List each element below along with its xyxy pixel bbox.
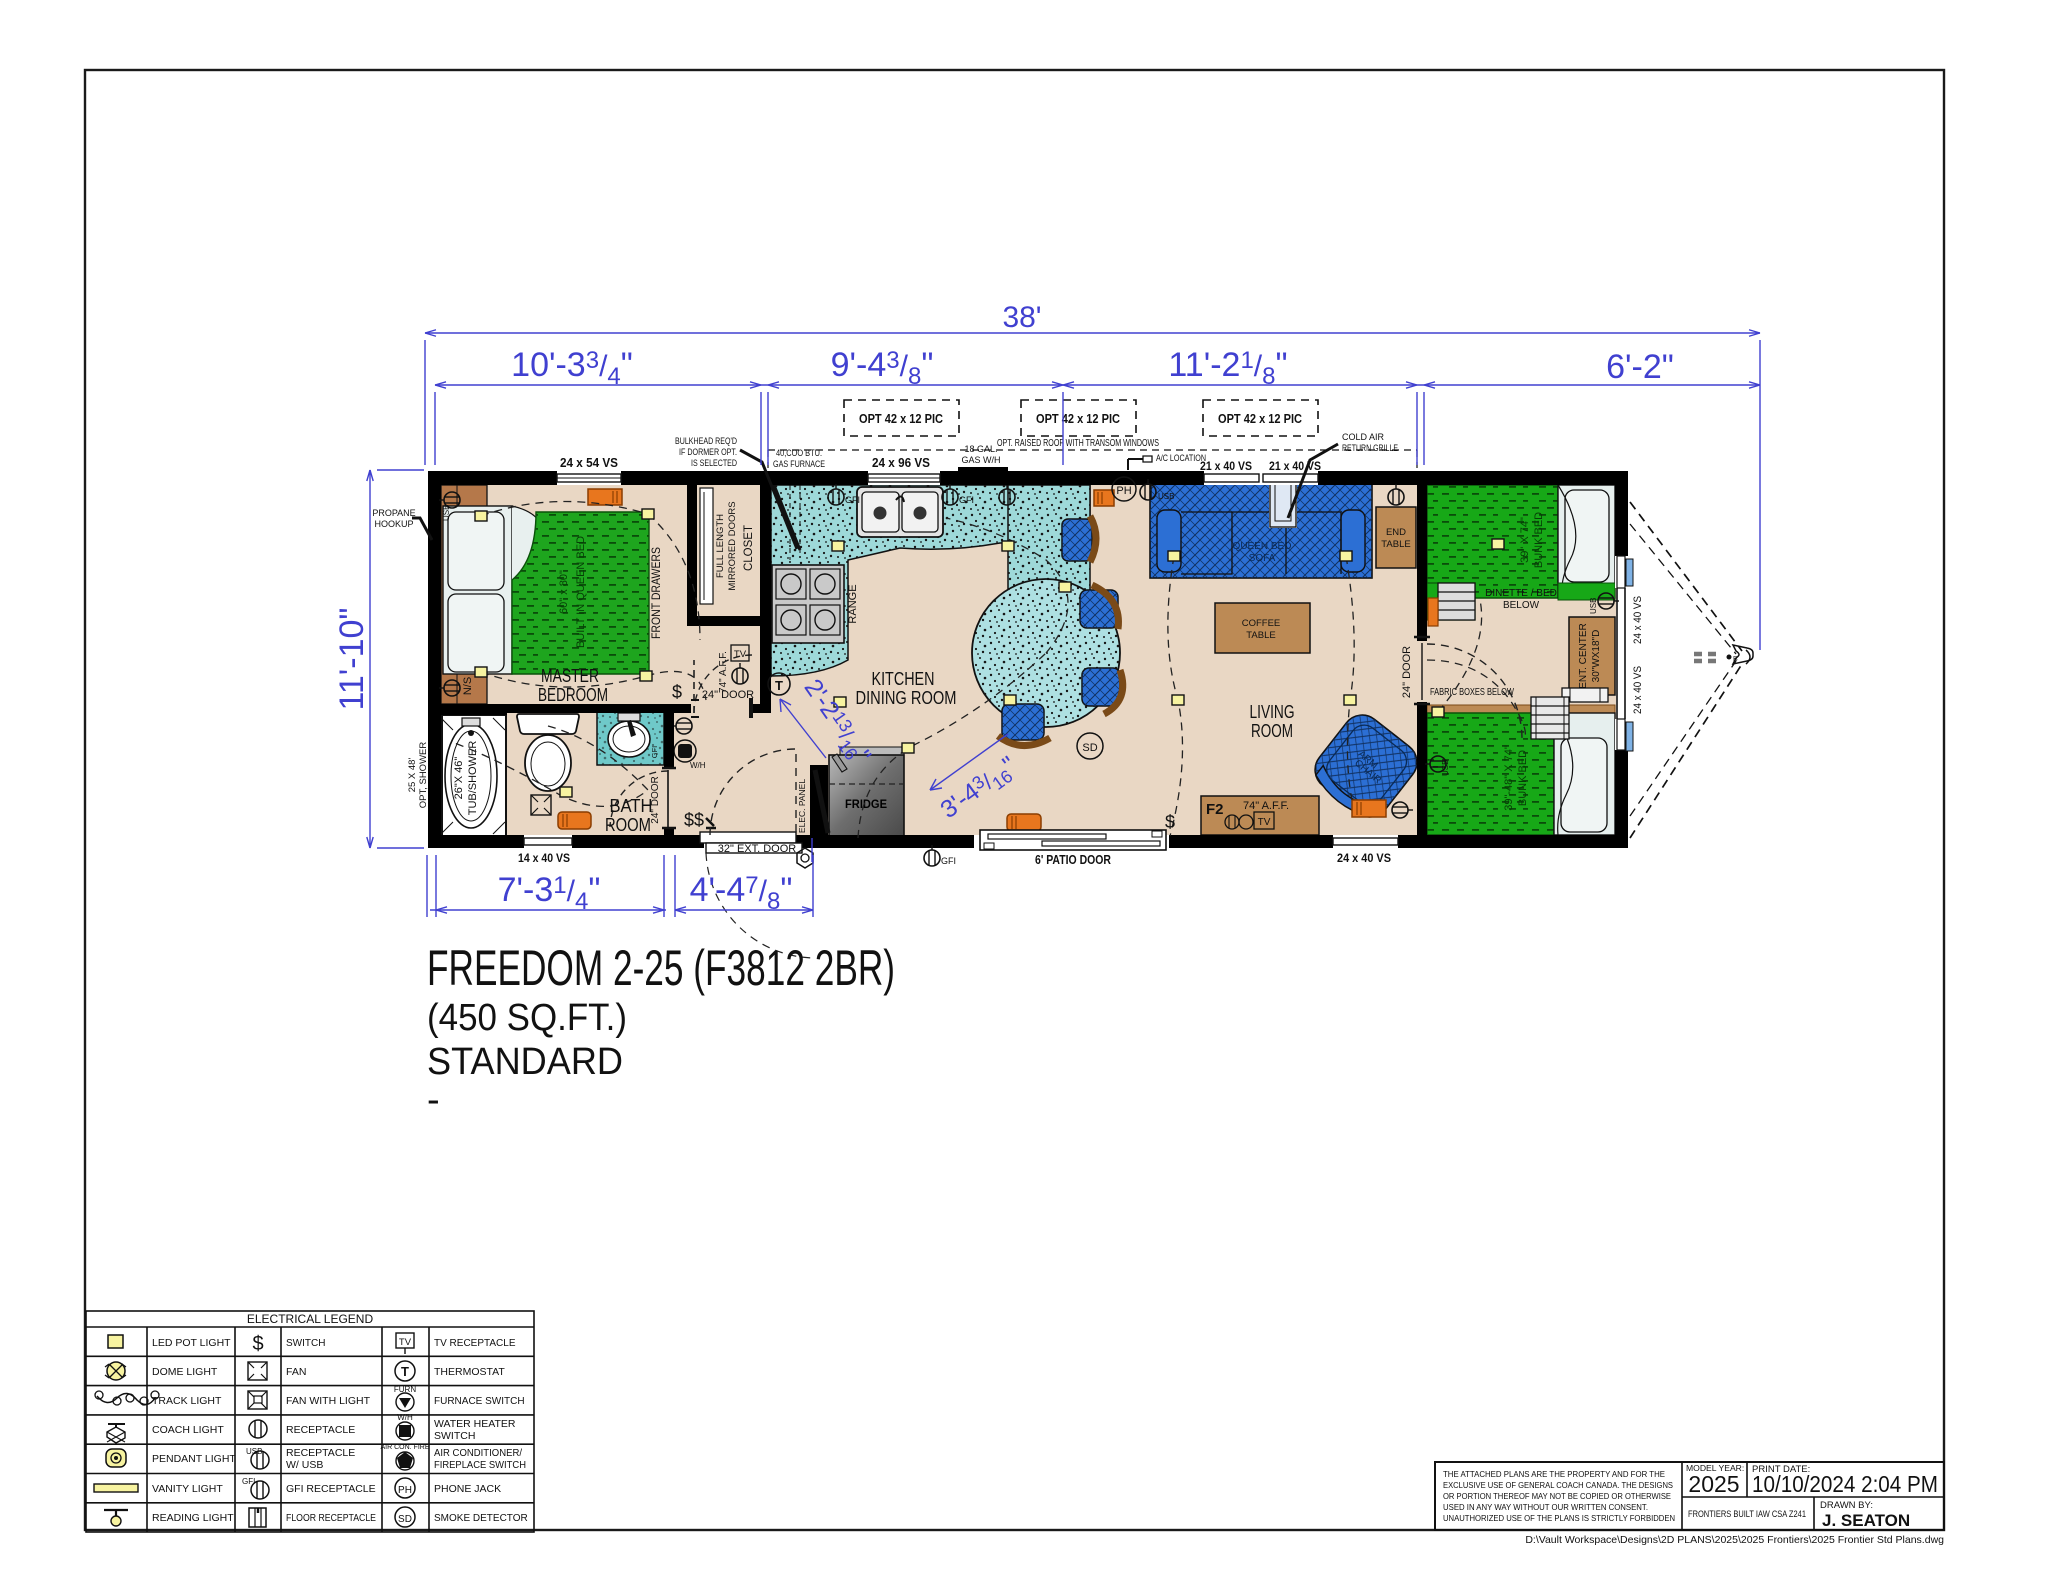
svg-text:21 x 40 VS: 21 x 40 VS — [1200, 459, 1252, 473]
svg-text:FIREPLACE SWITCH: FIREPLACE SWITCH — [434, 1460, 526, 1471]
svg-text:SMOKE DETECTOR: SMOKE DETECTOR — [434, 1513, 528, 1524]
svg-text:LIVING: LIVING — [1250, 702, 1295, 722]
svg-text:DINING ROOM: DINING ROOM — [856, 688, 957, 708]
svg-text:18 GAL.: 18 GAL. — [964, 444, 997, 454]
svg-text:BELOW: BELOW — [1503, 600, 1540, 611]
svg-text:OPT 42 x 12 PIC: OPT 42 x 12 PIC — [859, 411, 944, 426]
svg-text:GAS W/H: GAS W/H — [961, 455, 1000, 465]
svg-text:GFI RECEPTACLE: GFI RECEPTACLE — [286, 1483, 376, 1495]
svg-text:TV: TV — [1258, 817, 1271, 828]
svg-text:OPT, SHOWER: OPT, SHOWER — [418, 742, 429, 809]
svg-text:10/10/2024 2:04 PM: 10/10/2024 2:04 PM — [1752, 1471, 1938, 1497]
svg-text:KITCHEN: KITCHEN — [872, 669, 935, 689]
svg-text:FRONTIERS BUILT IAW CSA Z241: FRONTIERS BUILT IAW CSA Z241 — [1688, 1509, 1806, 1520]
svg-text:74" A.F.F.: 74" A.F.F. — [1243, 800, 1289, 812]
svg-text:$$: $$ — [684, 810, 704, 830]
svg-text:SD: SD — [398, 1514, 412, 1525]
svg-text:FULL LENGTH: FULL LENGTH — [715, 514, 726, 578]
svg-text:GFI: GFI — [845, 495, 860, 505]
svg-text:DRAWN BY:: DRAWN BY: — [1820, 1500, 1873, 1511]
svg-text:COLD AIR: COLD AIR — [1342, 432, 1385, 442]
svg-text:AIR CON. FIRE: AIR CON. FIRE — [380, 1444, 429, 1451]
svg-text:MASTER: MASTER — [541, 666, 599, 686]
svg-text:60" x 80": 60" x 80" — [558, 570, 570, 614]
svg-text:30"WX18"D: 30"WX18"D — [1591, 630, 1602, 683]
svg-text:W/H: W/H — [690, 761, 706, 770]
svg-text:SOFA: SOFA — [1249, 553, 1276, 564]
svg-text:IF DORMER OPT.: IF DORMER OPT. — [679, 447, 737, 457]
svg-text:W/ USB: W/ USB — [286, 1459, 323, 1471]
svg-text:14 x 40 VS: 14 x 40 VS — [518, 851, 570, 865]
svg-text:RANGE: RANGE — [847, 584, 859, 623]
svg-text:DINETTE / BED: DINETTE / BED — [1485, 588, 1557, 599]
svg-text:6'-2": 6'-2" — [1606, 348, 1674, 386]
svg-text:TRACK LIGHT: TRACK LIGHT — [152, 1395, 222, 1407]
svg-text:FURNACE SWITCH: FURNACE SWITCH — [434, 1396, 525, 1407]
svg-text:BUNK BED: BUNK BED — [1533, 512, 1545, 568]
svg-text:FAN WITH LIGHT: FAN WITH LIGHT — [286, 1395, 371, 1407]
svg-text:ELEC. PANEL: ELEC. PANEL — [797, 779, 807, 833]
svg-text:(450 SQ.FT.): (450 SQ.FT.) — [427, 997, 627, 1039]
svg-text:TABLE: TABLE — [1246, 630, 1275, 641]
svg-text:74" A.F.F.: 74" A.F.F. — [718, 651, 729, 693]
svg-text:$: $ — [1165, 812, 1175, 832]
svg-text:ROOM: ROOM — [1251, 721, 1293, 741]
svg-text:RECEPTACLE: RECEPTACLE — [286, 1447, 355, 1459]
svg-text:39" X 74": 39" X 74" — [1519, 517, 1531, 563]
svg-text:END: END — [1386, 527, 1406, 538]
svg-text:RETURN GRILLE: RETURN GRILLE — [1342, 443, 1398, 453]
svg-text:38': 38' — [1002, 301, 1041, 334]
svg-text:D:\Vault Workspace\Designs\2D: D:\Vault Workspace\Designs\2D PLANS\2025… — [1525, 1534, 1944, 1546]
svg-text:TUB/SHOWER: TUB/SHOWER — [467, 741, 479, 816]
svg-text:PHONE JACK: PHONE JACK — [434, 1483, 501, 1495]
svg-text:ROOM: ROOM — [605, 815, 651, 835]
svg-text:HOOKUP: HOOKUP — [374, 519, 413, 529]
svg-text:GAS FURNACE: GAS FURNACE — [773, 459, 825, 469]
svg-text:AIR CONDITIONER/: AIR CONDITIONER/ — [434, 1448, 522, 1459]
svg-text:FABRIC BOXES BELOW: FABRIC BOXES BELOW — [1430, 687, 1514, 698]
svg-text:USB: USB — [1589, 598, 1598, 614]
svg-text:COFFEE: COFFEE — [1242, 618, 1281, 629]
svg-text:40,COO BTU.: 40,COO BTU. — [776, 448, 822, 458]
svg-text:BEDROOM: BEDROOM — [538, 685, 608, 705]
svg-text:LED POT LIGHT: LED POT LIGHT — [152, 1337, 231, 1349]
svg-text:TABLE: TABLE — [1381, 539, 1410, 550]
svg-text:BATH: BATH — [610, 796, 653, 816]
svg-text:W/H: W/H — [397, 1413, 413, 1422]
svg-text:A/C LOCATION: A/C LOCATION — [1156, 453, 1206, 463]
svg-text:25 X 48': 25 X 48' — [407, 758, 418, 793]
svg-text:B: B — [1733, 656, 1738, 663]
svg-text:ENT. CENTER: ENT. CENTER — [1578, 623, 1589, 689]
svg-text:39"-48" X 74": 39"-48" X 74" — [1503, 745, 1515, 811]
svg-text:IS SELECTED: IS SELECTED — [691, 458, 737, 468]
svg-text:N/S: N/S — [462, 677, 474, 695]
svg-text:GFI: GFI — [959, 495, 974, 505]
svg-text:OR PORTION THEREOF MAY NOT BE: OR PORTION THEREOF MAY NOT BE COPIED OR … — [1443, 1491, 1671, 1501]
svg-text:26"X 46": 26"X 46" — [453, 757, 465, 800]
svg-text:FRIDGE: FRIDGE — [845, 797, 887, 811]
svg-text:EXCLUSIVE USE OF GENERAL COACH: EXCLUSIVE USE OF GENERAL COACH CANADA. T… — [1443, 1480, 1673, 1490]
svg-text:BUILT IN QUEEN BED: BUILT IN QUEEN BED — [575, 536, 587, 648]
svg-text:32" EXT. DOOR: 32" EXT. DOOR — [718, 843, 797, 855]
svg-text:USED IN ANY WAY WITHOUT OUR WR: USED IN ANY WAY WITHOUT OUR WRITTEN CONS… — [1443, 1502, 1648, 1512]
svg-text:24 x 40 VS: 24 x 40 VS — [1337, 851, 1391, 865]
svg-text:DOME LIGHT: DOME LIGHT — [152, 1366, 218, 1378]
svg-text:QUEEN BED: QUEEN BED — [1233, 541, 1292, 552]
svg-text:PH: PH — [398, 1485, 412, 1496]
svg-text:T: T — [401, 1364, 409, 1379]
svg-text:$: $ — [252, 1333, 263, 1355]
svg-text:OPT. RAISED ROOF WITH TRANSOM: OPT. RAISED ROOF WITH TRANSOM WINDOWS — [997, 438, 1159, 449]
svg-text:BUNK BED: BUNK BED — [1517, 750, 1529, 806]
svg-text:2025: 2025 — [1688, 1471, 1739, 1497]
svg-text:ELECTRICAL LEGEND: ELECTRICAL LEGEND — [247, 1312, 374, 1326]
svg-text:USB: USB — [1158, 492, 1174, 501]
svg-text:CLOSET: CLOSET — [743, 525, 755, 571]
svg-text:FLOOR RECEPTACLE: FLOOR RECEPTACLE — [286, 1513, 376, 1524]
svg-text:SD: SD — [1082, 742, 1097, 754]
svg-text:11'-10": 11'-10" — [333, 608, 371, 711]
svg-text:SWITCH: SWITCH — [434, 1430, 475, 1442]
svg-text:21 x 40 VS: 21 x 40 VS — [1269, 459, 1321, 473]
svg-text:THERMOSTAT: THERMOSTAT — [434, 1366, 505, 1378]
svg-text:-: - — [427, 1079, 440, 1121]
svg-text:TV: TV — [399, 1337, 412, 1348]
svg-text:J. SEATON: J. SEATON — [1822, 1511, 1910, 1530]
svg-text:24" DOOR: 24" DOOR — [1401, 646, 1413, 698]
svg-text:GFI: GFI — [650, 746, 659, 759]
svg-text:24 x 40 VS: 24 x 40 VS — [1632, 666, 1644, 714]
svg-text:T: T — [775, 678, 783, 693]
svg-text:24 x 54 VS: 24 x 54 VS — [560, 455, 618, 470]
svg-text:USB: USB — [1441, 760, 1450, 776]
svg-text:TV RECEPTACLE: TV RECEPTACLE — [434, 1338, 516, 1349]
svg-text:PH: PH — [1116, 485, 1131, 497]
svg-text:FRONT DRAWERS: FRONT DRAWERS — [651, 547, 663, 639]
svg-text:COACH LIGHT: COACH LIGHT — [152, 1424, 224, 1436]
svg-text:USB: USB — [442, 505, 451, 521]
svg-text:FREEDOM 2-25 (F3812 2BR): FREEDOM 2-25 (F3812 2BR) — [427, 940, 895, 996]
svg-text:F2: F2 — [1206, 801, 1224, 818]
svg-text:SWITCH: SWITCH — [286, 1338, 325, 1349]
svg-text:STANDARD: STANDARD — [427, 1041, 623, 1083]
svg-text:RECEPTACLE: RECEPTACLE — [286, 1424, 355, 1436]
svg-text:BULKHEAD REQ'D: BULKHEAD REQ'D — [675, 436, 737, 446]
svg-text:FAN: FAN — [286, 1366, 306, 1378]
svg-text:WATER HEATER: WATER HEATER — [434, 1418, 516, 1430]
svg-text:OPT 42 x 12 PIC: OPT 42 x 12 PIC — [1036, 411, 1121, 426]
svg-text:TV: TV — [734, 649, 747, 660]
svg-text:VANITY LIGHT: VANITY LIGHT — [152, 1483, 223, 1495]
svg-text:MIRRORED DOORS: MIRRORED DOORS — [727, 501, 738, 590]
svg-text:OPT 42 x 12 PIC: OPT 42 x 12 PIC — [1218, 411, 1303, 426]
svg-text:6' PATIO DOOR: 6' PATIO DOOR — [1035, 852, 1111, 867]
svg-text:24 x 40 VS: 24 x 40 VS — [1632, 596, 1644, 644]
svg-text:24 x 96 VS: 24 x 96 VS — [872, 455, 930, 470]
svg-text:GFI: GFI — [941, 856, 956, 866]
svg-text:PROPANE: PROPANE — [372, 508, 415, 518]
svg-text:READING LIGHT: READING LIGHT — [152, 1512, 234, 1524]
svg-text:THE ATTACHED PLANS ARE THE PRO: THE ATTACHED PLANS ARE THE PROPERTY AND … — [1443, 1469, 1665, 1479]
svg-text:PENDANT LIGHT: PENDANT LIGHT — [152, 1453, 236, 1465]
svg-text:UNAUTHORIZED USE OF THE PLANS: UNAUTHORIZED USE OF THE PLANS IS STRICTL… — [1443, 1513, 1675, 1523]
svg-text:$: $ — [672, 682, 682, 702]
